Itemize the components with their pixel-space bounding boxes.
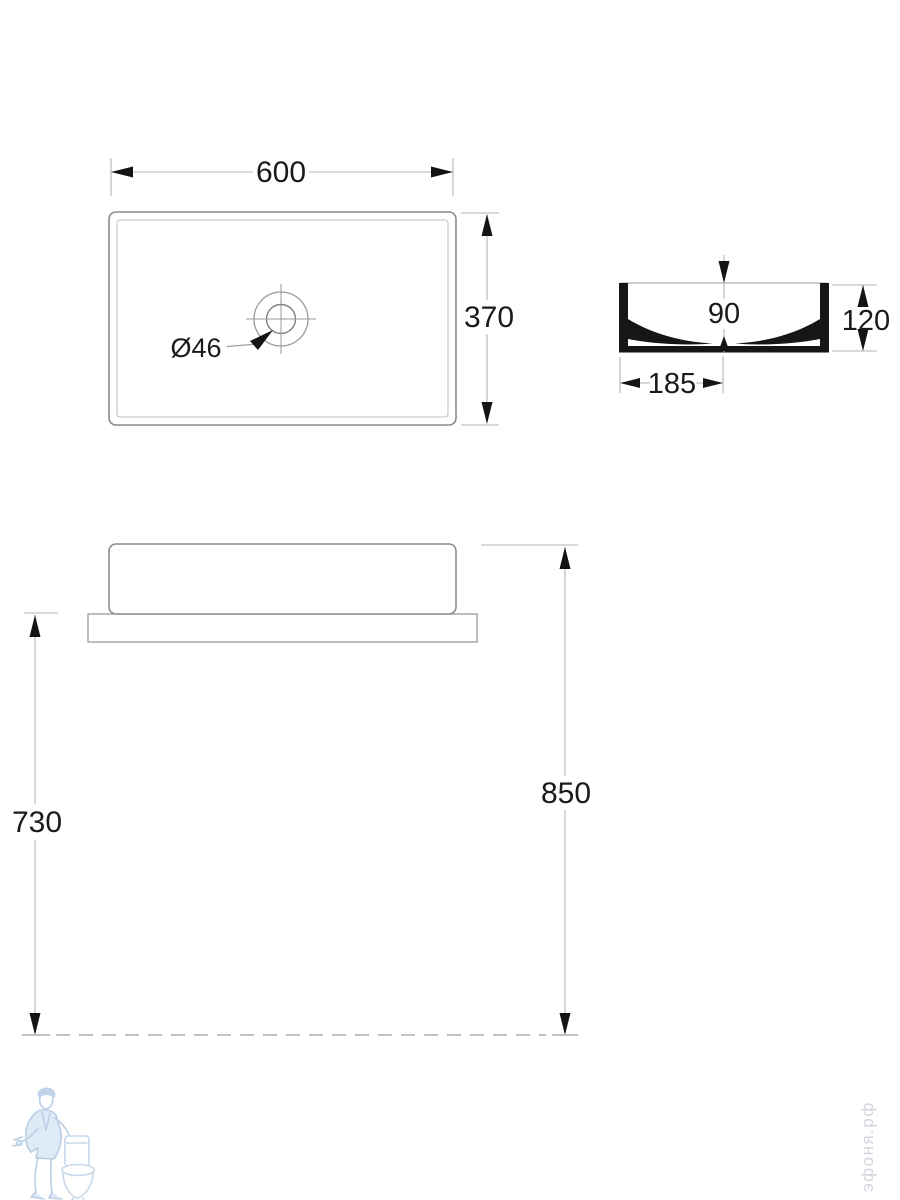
drawing-page: Ø46 600 370 <box>0 0 900 1200</box>
arrow-down-icon <box>30 1013 41 1035</box>
arrow-right-icon <box>703 378 723 388</box>
section-left-wall <box>619 283 628 352</box>
front-rim-height-label: 850 <box>541 777 591 810</box>
front-view: 850 730 <box>12 544 591 1035</box>
arrow-up-icon <box>30 615 41 637</box>
dimension-counter-height-730: 730 <box>12 613 62 1035</box>
section-inner-depth-label: 90 <box>708 298 740 330</box>
arrow-down-icon <box>560 1013 571 1035</box>
arrow-left-icon <box>111 167 133 178</box>
dimension-drain-offset-185: 185 <box>620 356 723 400</box>
technical-drawing: Ø46 600 370 <box>0 0 900 1200</box>
plan-depth-label: 370 <box>464 301 514 334</box>
section-right-wall <box>820 283 829 352</box>
plan-width-label: 600 <box>256 156 306 189</box>
dimension-rim-height-850: 850 <box>481 545 591 1035</box>
section-drain-offset-label: 185 <box>648 368 696 400</box>
arrow-left-icon <box>620 378 640 388</box>
arrow-down-icon <box>719 261 730 283</box>
plan-view: Ø46 600 370 <box>109 156 514 425</box>
front-counter-height-label: 730 <box>12 806 62 839</box>
arrow-up-icon <box>482 214 493 236</box>
arrow-down-icon <box>482 402 493 424</box>
front-basin-body <box>109 544 456 614</box>
dimension-height-120: 120 <box>832 285 890 351</box>
plumber-with-toilet-icon <box>13 1088 94 1200</box>
section-view: 90 120 185 <box>619 255 890 400</box>
section-basin-floor-left <box>628 319 713 344</box>
front-countertop <box>88 614 477 642</box>
arrow-right-icon <box>431 167 453 178</box>
dimension-width-600: 600 <box>111 156 453 196</box>
site-watermark: эфоня.рф <box>858 1101 877 1192</box>
dimension-depth-370: 370 <box>461 213 514 425</box>
dimension-inner-depth-90: 90 <box>708 255 740 352</box>
drain-diameter-label: Ø46 <box>170 333 221 363</box>
arrow-up-icon <box>719 336 730 351</box>
arrow-up-icon <box>560 547 571 569</box>
section-height-label: 120 <box>842 305 890 337</box>
section-basin-floor-right <box>735 319 820 344</box>
arrow-up-icon <box>858 285 869 307</box>
